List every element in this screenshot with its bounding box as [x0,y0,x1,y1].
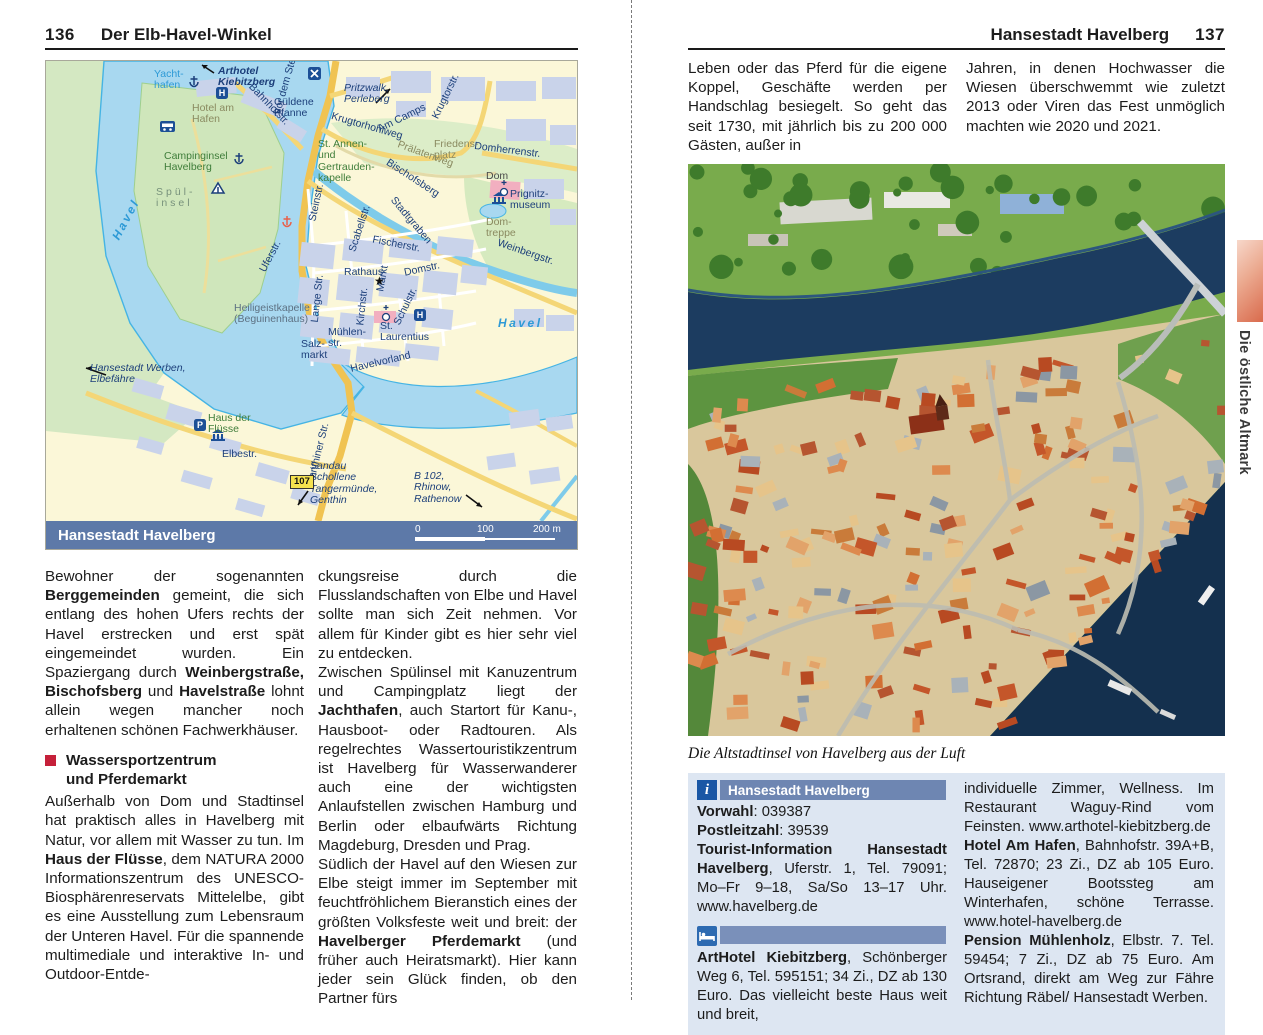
section-title: Hansestadt Havelberg [991,25,1170,45]
red-square-bullet [45,755,56,766]
map-label-st-annen-kapelle: St. Annen- und Gertrauden- kapelle [318,139,375,184]
page-number: 136 [45,25,75,45]
paragraph: Jahren, in denen Hochwasser die Wiesen ü… [966,59,1225,136]
info-right-column: individuelle Zimmer, Wellness. Im Restau… [964,780,1214,1025]
map-title-bar: Hansestadt Havelberg 0 100 200 m [46,521,577,549]
info-line: Vorwahl: 039387 [697,803,947,822]
info-icon: i [697,780,717,800]
page-number: 137 [1195,25,1225,45]
paragraph: Leben oder das Pferd für die eigene Kopp… [688,59,947,155]
page-fold-divider [631,0,632,1000]
photo-caption: Die Altstadtinsel von Havelberg aus der … [688,745,1225,763]
left-page: 136 Der Elb-Havel-Winkel [45,25,578,1009]
map-label-elbestr: Elbestr. [222,449,257,460]
bed-icon [697,926,717,946]
map-label-pritzwalk: Pritzwalk, Perleberg [344,83,390,106]
map-label-hotel-am-hafen: Hotel am Hafen [192,103,234,126]
map-label-dom: Dom [486,171,508,182]
right-column: ckungsreise durch die Flusslandschaften … [318,567,577,1009]
map-label-haus-der-fluesse: Haus der Flüsse [208,413,251,436]
info-left-column: i Hansestadt Havelberg Vorwahl: 039387 P… [697,780,947,1025]
paragraph: ckungsreise durch die Flusslandschaften … [318,567,577,663]
map-label-b102: B 102, Rhinow, Rathenow [414,471,461,505]
info-line: Hotel Am Hafen, Bahnhofstr. 39A+B, Tel. … [964,837,1214,932]
info-line: Pension Mühlenholz, Elbstr. 7. Tel. 5945… [964,932,1214,1008]
map-label-campinginsel: Campinginsel Havelberg [164,151,228,174]
map-label-spuelinsel: Spül- insel [156,187,196,210]
paragraph: Bewohner der sogenannten Berggemeinden g… [45,567,304,740]
map-scale-bar: 0 100 200 m [415,526,565,544]
section-heading: Wassersportzentrum und Pferdemarkt [45,751,304,789]
parking-icon: P [194,419,206,431]
aerial-photo-graphic [688,164,1225,736]
info-line: Postleitzahl: 39539 [697,822,947,841]
right-page-header: Hansestadt Havelberg 137 [688,25,1225,50]
map-label-prignitzmuseum: Prignitz- museum [510,189,550,212]
right-page: Hansestadt Havelberg 137 Leben oder das … [688,25,1225,1035]
map-label-muehlenstr: Mühlen- str. [328,327,366,350]
scale-segment [415,537,485,541]
info-line: Tourist-Information Hansestadt Havelberg… [697,841,947,917]
map-label-heiligeistkapelle: Heiligeistkapelle (Beguinenhaus) [234,303,310,326]
hotel-icon: H [414,309,426,321]
aerial-photo [688,164,1225,736]
info-line: individuelle Zimmer, Wellness. Im Restau… [964,780,1214,837]
scale-zero: 0 [415,524,421,535]
intro-column-1: Leben oder das Pferd für die eigene Kopp… [688,59,947,155]
townhall-star-icon: ★ [374,275,385,287]
scale-two-hundred: 200 m [533,524,561,535]
scale-hundred: 100 [477,524,494,535]
paragraph: Außerhalb von Dom und Stadtinsel hat pra… [45,792,304,984]
map-label-friedensplatz: Friedens- platz [434,139,478,162]
map-label-yachthafen: Yacht- hafen [154,69,184,92]
left-column: Bewohner der sogenannten Berggemeinden g… [45,567,304,1009]
hotel-icon: H [216,87,228,99]
map-label-arthotel: Arthotel Kiebitzberg [218,66,275,89]
route-107-badge: 107 [290,475,314,489]
scale-segment [485,538,555,540]
lodging-section-header [697,926,947,946]
paragraph: Südlich der Havel auf den Wiesen zur Elb… [318,855,577,1009]
chapter-margin-label: Die östliche Altmark [1236,330,1252,475]
info-header-bar: Hansestadt Havelberg [720,780,946,800]
map-label-sandau: Sandau Schollene Tangermünde, Genthin [310,461,377,506]
lodging-header-bar [720,926,946,944]
map-label-werben-faehre: Hansestadt Werben, Elbefähre [90,363,186,386]
section-title: Der Elb-Havel-Winkel [101,25,272,45]
info-line: ArtHotel Kiebitzberg, Schönberger Weg 6,… [697,949,947,1025]
map-label-st-laurentius: St. Laurentius [380,321,429,344]
map-label-havel-east: Havel [498,317,543,330]
info-box: i Hansestadt Havelberg Vorwahl: 039387 P… [688,773,1225,1035]
paragraph: Zwischen Spülinsel mit Kanuzentrum und C… [318,663,577,855]
chapter-color-tab [1237,240,1263,322]
city-map: Yacht- hafen Arthotel Kiebitzberg Gülden… [45,60,578,550]
map-label-salzmarkt: Salz- markt [301,339,327,362]
info-header: i Hansestadt Havelberg [697,780,947,800]
left-page-header: 136 Der Elb-Havel-Winkel [45,25,578,50]
map-title: Hansestadt Havelberg [58,527,216,544]
intro-column-2: Jahren, in denen Hochwasser die Wiesen ü… [966,59,1225,155]
